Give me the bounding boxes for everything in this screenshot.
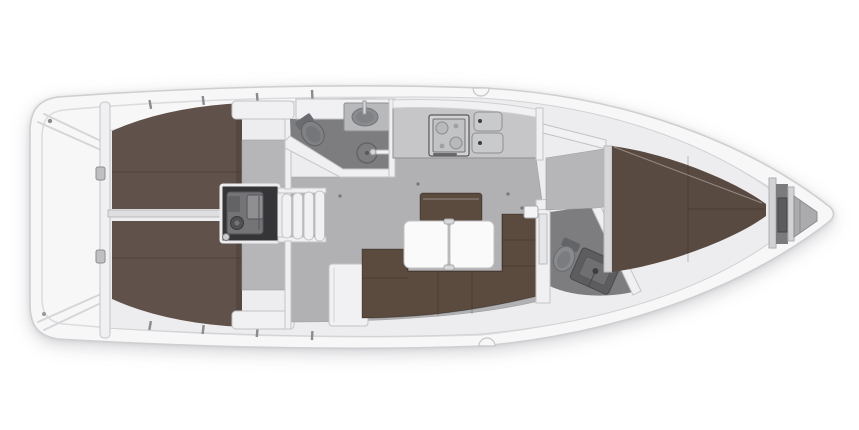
floor-fitting: [506, 192, 509, 195]
companionway-step: [293, 193, 303, 239]
floor-fitting: [520, 206, 523, 209]
companionway-step: [304, 192, 314, 240]
transom-bulkhead: [100, 102, 110, 338]
sink-basin: [472, 133, 503, 153]
stove-burner: [436, 122, 448, 134]
table-hinge: [444, 265, 454, 270]
companionway-step: [315, 191, 325, 241]
floor-fitting: [416, 182, 419, 185]
floor-fitting: [338, 194, 341, 197]
table-leaf: [450, 221, 494, 268]
fwd-cabin-floor: [546, 148, 610, 210]
stove-burner-small: [454, 124, 459, 129]
stove-knobs: [433, 153, 457, 155]
stove-burner-small: [440, 144, 445, 149]
sink-drain: [478, 119, 482, 123]
aft-bulkhead-port: [285, 241, 291, 329]
floorplan-canvas: [0, 0, 859, 430]
engine-part: [228, 196, 240, 212]
aft-bulkhead-starboard: [285, 119, 291, 189]
engine-part: [247, 195, 263, 219]
table-hinge: [444, 219, 454, 224]
yacht-floorplan: [0, 0, 859, 430]
engine-pulley-hub: [235, 221, 240, 226]
anchor-locker-inner: [778, 198, 787, 232]
faucet-aft: [363, 101, 366, 114]
fwd-heads-door: [539, 214, 547, 264]
nav-seat: [420, 193, 482, 222]
engine-cap: [223, 234, 230, 241]
anchor-bulkhead: [788, 187, 794, 241]
deck-fitting: [42, 312, 46, 316]
berth-head-panel: [604, 146, 612, 272]
engine-block: [223, 192, 264, 241]
stove: [429, 115, 469, 156]
bulkhead-latch: [96, 250, 105, 263]
galley-sink: [472, 112, 503, 153]
sink-drain: [478, 141, 482, 145]
table-leaf: [404, 221, 448, 268]
shower-drain-center: [365, 151, 369, 155]
anchor-bulkhead: [769, 178, 776, 248]
fwd-heads-latch: [524, 206, 538, 218]
stove-burner: [450, 137, 462, 149]
aft-cabin-locker-starboard: [232, 101, 294, 119]
aft-cabin-floor-starboard: [242, 140, 288, 187]
shower-handle-knob: [370, 149, 376, 155]
companionway-step: [282, 194, 292, 238]
aft-cabin-floor-port: [242, 243, 288, 290]
saloon-fwd-bulkhead: [536, 108, 543, 160]
bulkhead-latch: [96, 167, 105, 180]
deck-fitting: [48, 119, 52, 123]
